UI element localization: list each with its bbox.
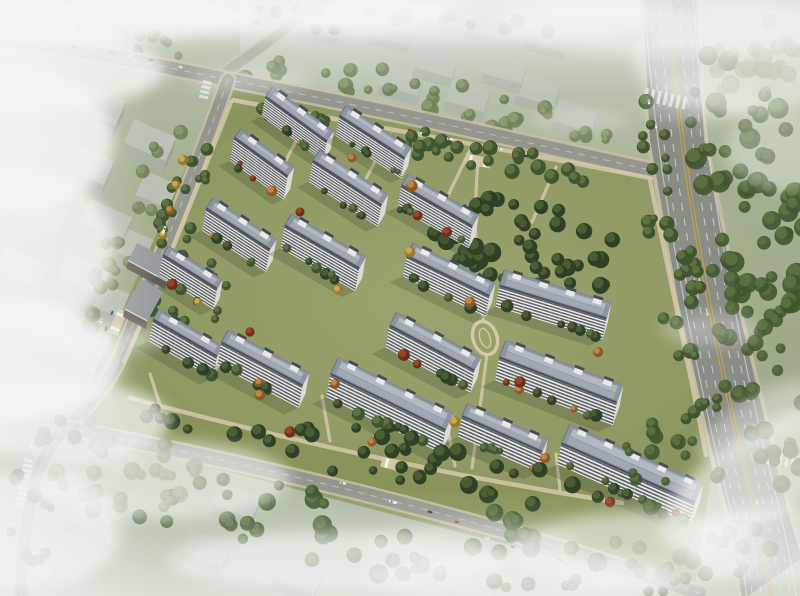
vehicle bbox=[655, 124, 658, 129]
architectural-aerial-rendering bbox=[0, 0, 800, 596]
aerial-scene-svg bbox=[0, 0, 800, 596]
